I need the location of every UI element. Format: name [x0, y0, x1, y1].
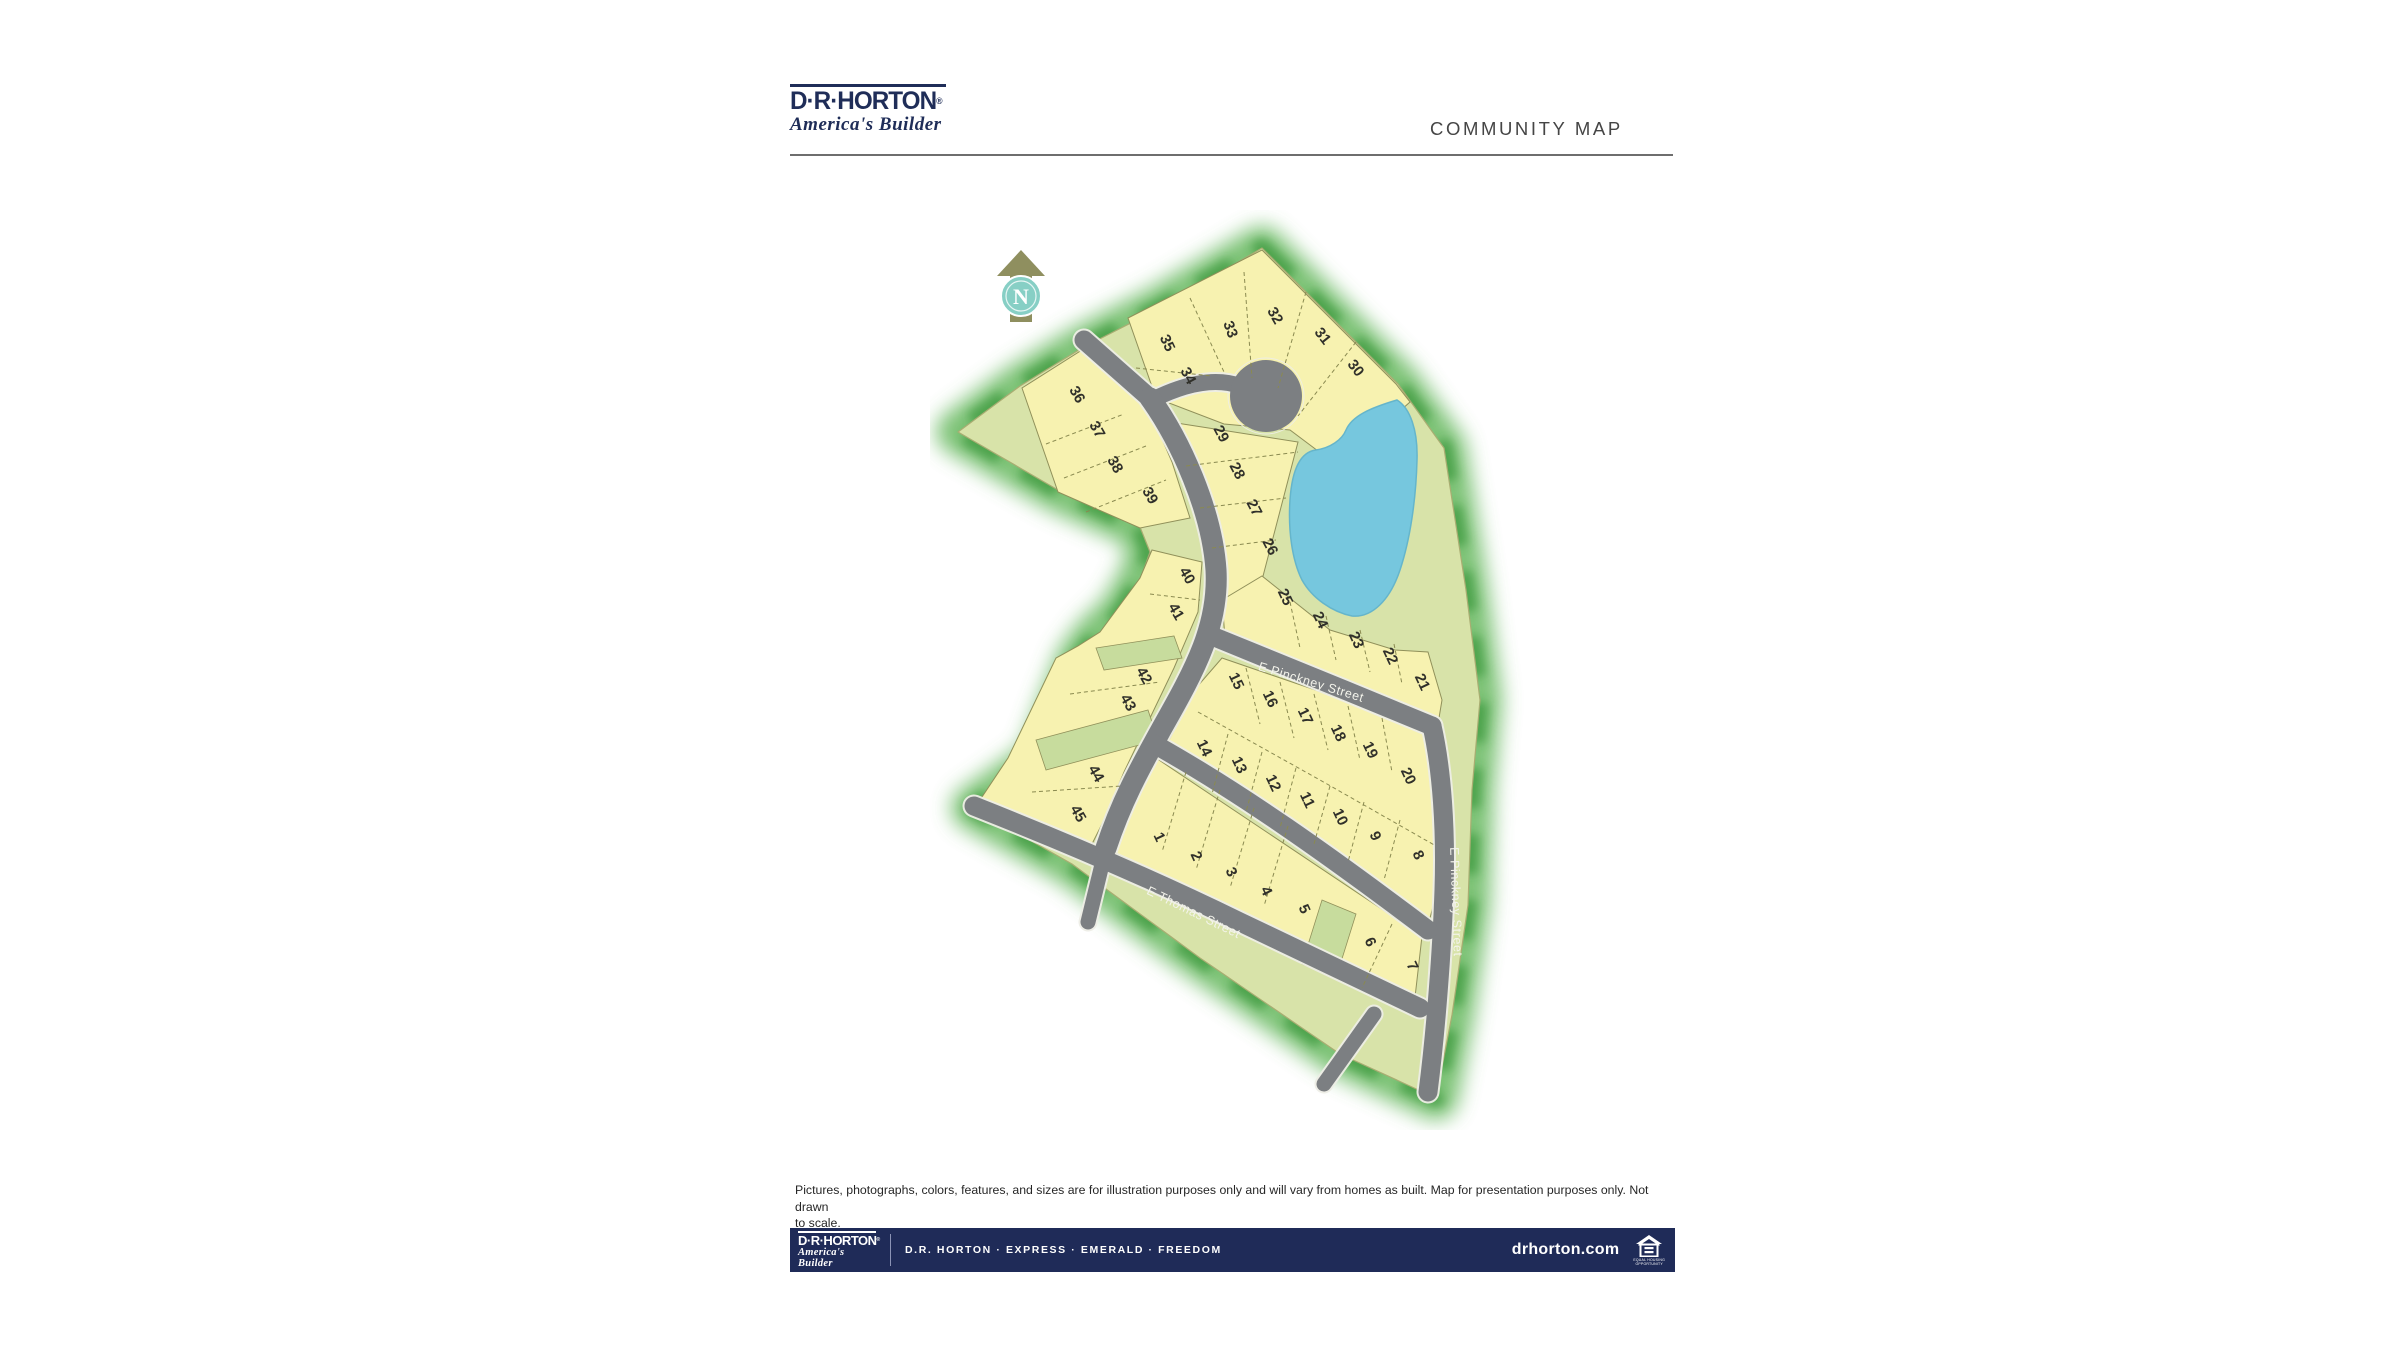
footer-logo-wordmark: D·R·HORTON®	[798, 1234, 880, 1247]
footer-logo-name: D·R·HORTON	[798, 1233, 877, 1248]
equal-housing-text: EQUAL HOUSINGOPPORTUNITY	[1633, 1258, 1665, 1266]
cul-de-sac	[1230, 360, 1302, 432]
disclaimer: Pictures, photographs, colors, features,…	[795, 1182, 1655, 1232]
footer-brands: D.R. HORTON · EXPRESS · EMERALD · FREEDO…	[905, 1244, 1222, 1256]
page: D·R·HORTON® America's Builder COMMUNITY …	[0, 0, 2396, 1356]
disclaimer-line1: Pictures, photographs, colors, features,…	[795, 1183, 1648, 1214]
registered-icon: ®	[936, 96, 942, 106]
north-label: N	[1013, 284, 1029, 309]
equal-housing-logo: EQUAL HOUSINGOPPORTUNITY	[1633, 1235, 1665, 1266]
logo-name: D·R·HORTON	[790, 87, 936, 115]
footer-website-link[interactable]: drhorton.com	[1512, 1241, 1620, 1259]
footer-logo-tagline: America's Builder	[798, 1247, 880, 1269]
page-title: COMMUNITY MAP	[1430, 118, 1623, 140]
north-arrow: N	[997, 250, 1045, 322]
drhorton-logo: D·R·HORTON® America's Builder	[790, 84, 950, 136]
footer-registered-icon: ®	[877, 1237, 880, 1243]
footer-bar: D·R·HORTON® America's Builder D.R. HORTO…	[790, 1228, 1675, 1272]
equal-housing-house-icon	[1636, 1235, 1662, 1257]
logo-wordmark: D·R·HORTON®	[790, 88, 945, 114]
footer-drhorton-logo: D·R·HORTON® America's Builder	[798, 1231, 880, 1269]
footer-divider	[890, 1234, 891, 1266]
community-map: E Pinckney StreetE Pinckney StreetE Thom…	[930, 210, 1530, 1130]
logo-tagline: America's Builder	[790, 114, 950, 136]
header-divider	[790, 154, 1673, 156]
